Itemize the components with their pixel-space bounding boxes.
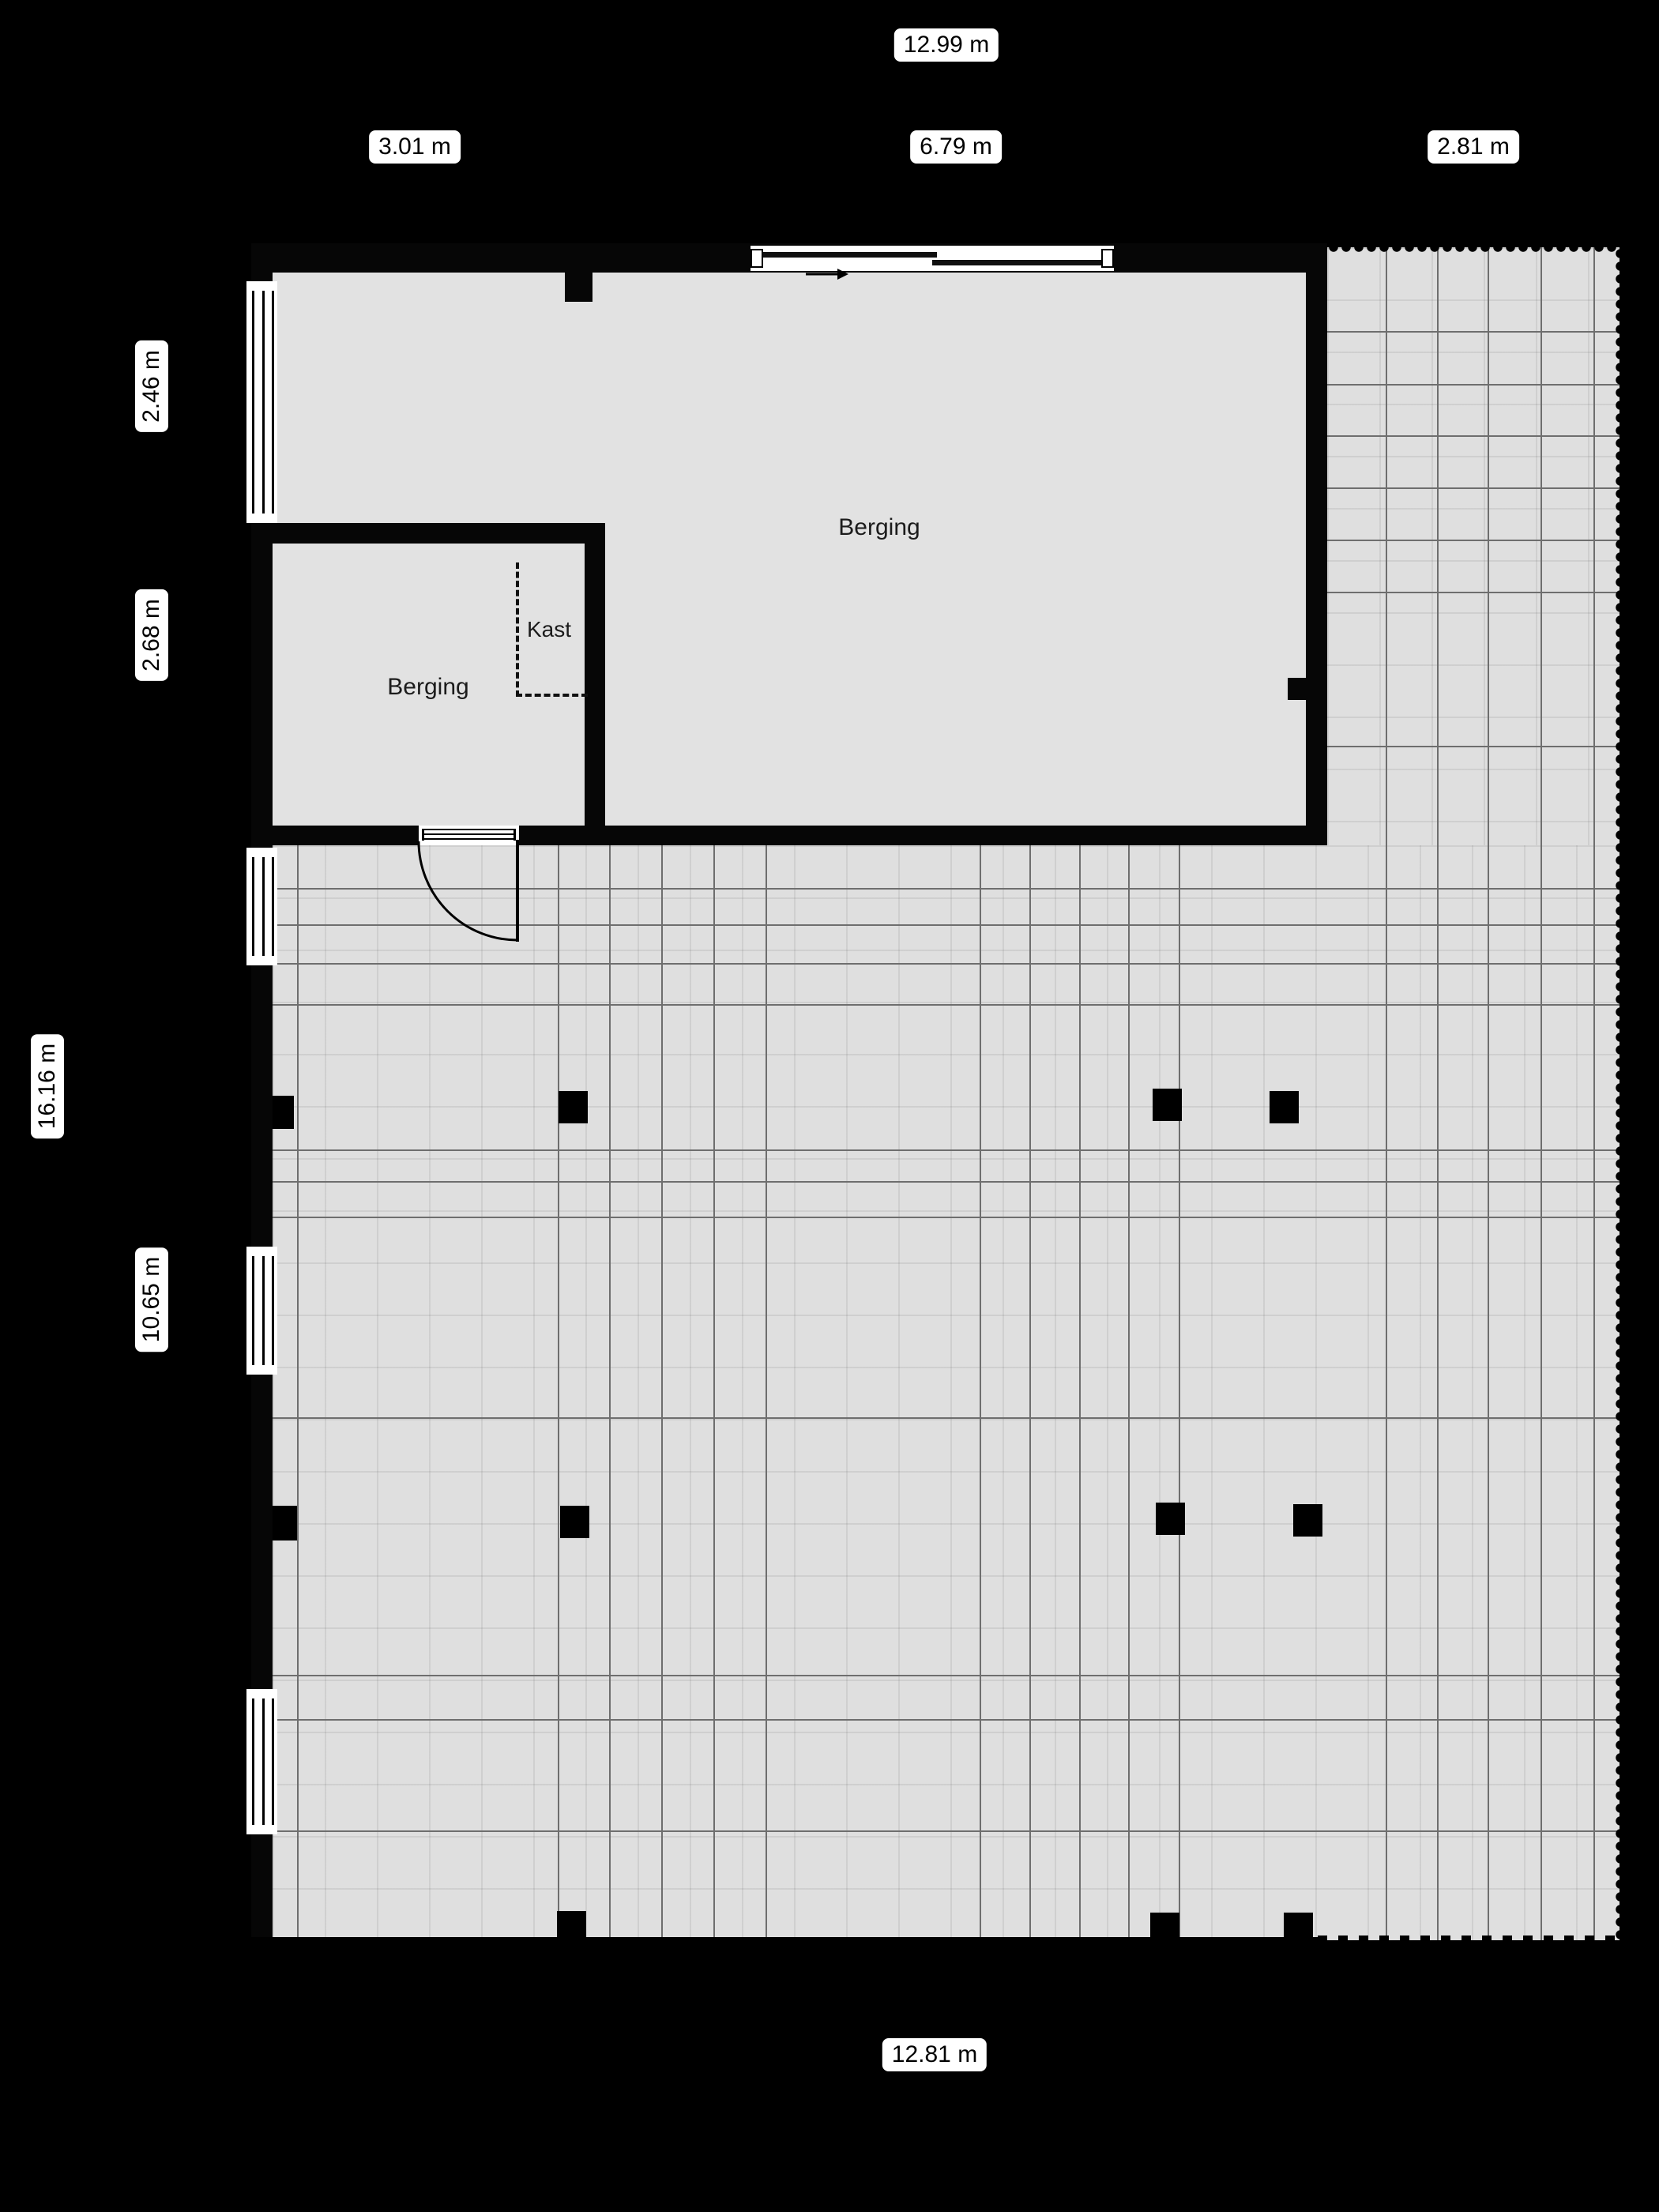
wall-bottom bbox=[251, 826, 1327, 845]
door-leaf bbox=[516, 840, 519, 942]
terrace-post bbox=[560, 1506, 589, 1538]
grid-line-vertical bbox=[609, 845, 611, 1940]
terrace-post bbox=[1293, 1504, 1322, 1537]
terrace-open-edge-right bbox=[1613, 247, 1627, 1940]
grid-line-horizontal bbox=[273, 1830, 1619, 1832]
grid-line-horizontal bbox=[273, 1004, 1619, 1006]
room-label-berging-small: Berging bbox=[387, 674, 468, 701]
grid-line-horizontal bbox=[1327, 487, 1619, 489]
window bbox=[246, 1689, 277, 1834]
grid-line-vertical bbox=[297, 845, 299, 1940]
wall-interior-horizontal bbox=[273, 523, 605, 544]
column-top bbox=[565, 273, 592, 302]
wall-post bbox=[273, 1506, 297, 1540]
dimension-bottom-total: 12.81 m bbox=[882, 2038, 987, 2071]
window-glazing bbox=[252, 291, 274, 513]
grid-line-horizontal bbox=[273, 1719, 1619, 1721]
grid-line-vertical bbox=[1179, 845, 1180, 1940]
terrace-post bbox=[1156, 1503, 1185, 1535]
grid-line-horizontal bbox=[1327, 435, 1619, 437]
window bbox=[246, 281, 277, 523]
grid-line-vertical bbox=[661, 845, 663, 1940]
grid-line-horizontal bbox=[273, 1181, 1619, 1183]
sliding-door bbox=[750, 246, 1114, 271]
column-right-wall bbox=[1288, 678, 1306, 700]
grid-line-vertical bbox=[1437, 247, 1439, 1940]
grid-line-vertical bbox=[1540, 247, 1542, 1940]
dimension-left-segment-2: 2.68 m bbox=[135, 589, 168, 681]
building-floor bbox=[273, 273, 1306, 826]
grid-line-vertical bbox=[1488, 247, 1489, 1940]
terrace-bottom-curb bbox=[251, 1937, 1318, 1943]
grid-line-horizontal bbox=[273, 1149, 1619, 1151]
grid-line-vertical bbox=[766, 845, 767, 1940]
terrace-open-edge-top bbox=[1327, 241, 1619, 254]
grid-line-vertical bbox=[1029, 845, 1031, 1940]
grid-line-horizontal bbox=[1327, 331, 1619, 333]
terrace-main bbox=[273, 845, 1619, 1940]
window-glazing bbox=[252, 1698, 274, 1825]
grid-line-horizontal bbox=[1327, 384, 1619, 386]
dimension-top-total: 12.99 m bbox=[894, 28, 999, 62]
grid-line-horizontal bbox=[1327, 592, 1619, 593]
wall-post bbox=[273, 1096, 294, 1129]
room-label-berging-main: Berging bbox=[838, 514, 920, 541]
window-glazing bbox=[252, 1256, 274, 1365]
terrace-right-strip bbox=[1327, 247, 1619, 845]
window bbox=[246, 848, 277, 965]
grid-line-horizontal bbox=[1327, 540, 1619, 541]
sliding-door-jamb bbox=[750, 249, 763, 268]
grid-line-horizontal bbox=[273, 1675, 1619, 1676]
grid-line-vertical bbox=[1079, 845, 1081, 1940]
grid-line-vertical bbox=[980, 845, 981, 1940]
grid-line-horizontal bbox=[273, 1417, 1619, 1419]
floor-plan: Berging Berging Kast 12.99 m 3.01 m 6.79… bbox=[0, 0, 1659, 2212]
terrace-post bbox=[559, 1091, 588, 1123]
sliding-door-panel bbox=[932, 260, 1109, 265]
grid-line-horizontal bbox=[273, 1217, 1619, 1218]
dimension-left-total: 16.16 m bbox=[31, 1034, 64, 1138]
grid-line-horizontal bbox=[273, 888, 1619, 890]
room-label-kast: Kast bbox=[527, 617, 571, 642]
terrace-post bbox=[1153, 1089, 1182, 1121]
wall-right bbox=[1306, 243, 1327, 845]
grid-line-vertical bbox=[558, 845, 559, 1940]
grid-line-vertical bbox=[1386, 247, 1387, 1940]
terrace-post bbox=[1270, 1091, 1299, 1123]
grid-line-horizontal bbox=[1327, 746, 1619, 747]
door-opening bbox=[419, 826, 519, 845]
terrace-bottom-dashed-edge bbox=[1318, 1935, 1619, 1940]
window bbox=[246, 1247, 277, 1375]
grid-line-vertical bbox=[1593, 247, 1595, 1940]
dimension-top-segment-left: 3.01 m bbox=[369, 130, 461, 164]
sliding-door-jamb bbox=[1101, 249, 1114, 268]
dimension-top-segment-middle: 6.79 m bbox=[910, 130, 1002, 164]
sliding-door-panel bbox=[757, 252, 937, 258]
dimension-left-segment-3: 10.65 m bbox=[135, 1247, 168, 1352]
grid-line-vertical bbox=[1128, 845, 1130, 1940]
grid-line-vertical bbox=[713, 845, 715, 1940]
dimension-top-segment-right: 2.81 m bbox=[1428, 130, 1519, 164]
dimension-left-segment-1: 2.46 m bbox=[135, 340, 168, 432]
grid-line-horizontal bbox=[273, 963, 1619, 965]
door-threshold bbox=[422, 829, 516, 841]
window-glazing bbox=[252, 857, 274, 956]
grid-line-horizontal bbox=[273, 924, 1619, 926]
